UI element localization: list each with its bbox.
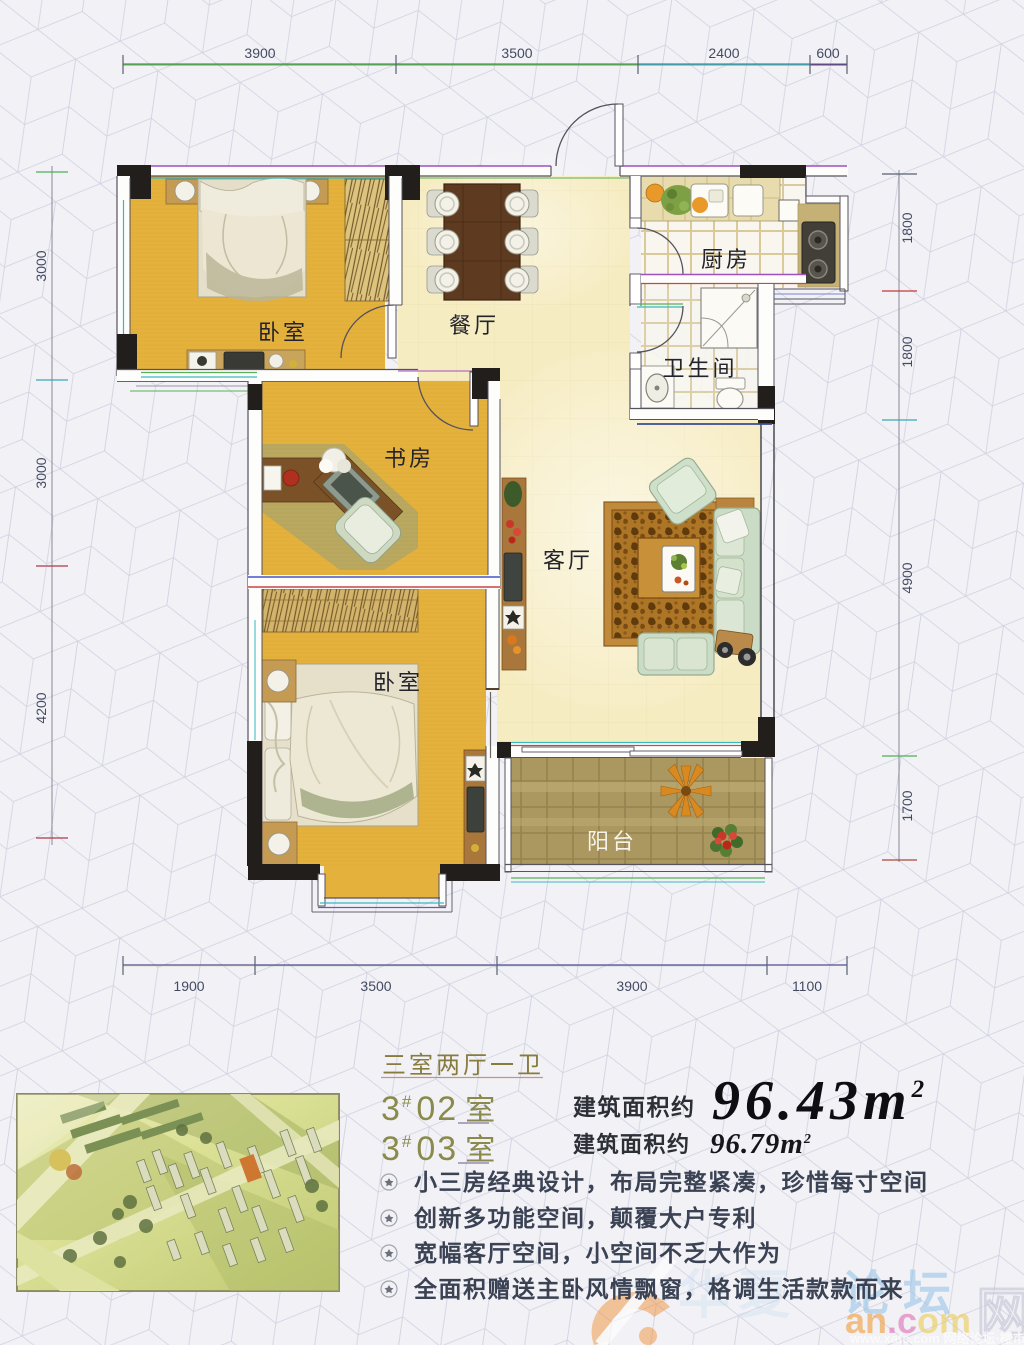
svg-text:96.79m2: 96.79m2 bbox=[710, 1128, 812, 1160]
svg-text:4200: 4200 bbox=[33, 692, 49, 723]
svg-text:3000: 3000 bbox=[33, 250, 49, 281]
svg-text:3500: 3500 bbox=[360, 978, 391, 994]
svg-text:96.43m2: 96.43m2 bbox=[712, 1070, 929, 1132]
svg-text:1900: 1900 bbox=[173, 978, 204, 994]
svg-text:卫生间: 卫生间 bbox=[662, 356, 737, 381]
svg-text:1800: 1800 bbox=[899, 212, 915, 243]
svg-text:4900: 4900 bbox=[899, 562, 915, 593]
svg-text:小三房经典设计，布局完整紧凑，珍惜每寸空间: 小三房经典设计，布局完整紧凑，珍惜每寸空间 bbox=[414, 1169, 929, 1195]
svg-text:宽幅客厅空间，小空间不乏大作为: 宽幅客厅空间，小空间不乏大作为 bbox=[414, 1240, 782, 1266]
svg-text:客厅: 客厅 bbox=[543, 548, 593, 573]
svg-text:3#02室: 3#02室 bbox=[381, 1090, 497, 1128]
svg-text:3000: 3000 bbox=[33, 457, 49, 488]
svg-text:三室两厅一卫: 三室两厅一卫 bbox=[382, 1052, 544, 1079]
svg-text:1100: 1100 bbox=[792, 978, 822, 994]
svg-text:建筑面积约: 建筑面积约 bbox=[573, 1132, 691, 1157]
svg-text:600: 600 bbox=[816, 45, 840, 61]
svg-text:厨房: 厨房 bbox=[701, 247, 751, 272]
svg-text:阳台: 阳台 bbox=[587, 829, 637, 854]
svg-text:2400: 2400 bbox=[708, 45, 739, 61]
svg-text:1800: 1800 bbox=[899, 336, 915, 367]
svg-text:书房: 书房 bbox=[384, 446, 434, 471]
svg-text:1700: 1700 bbox=[899, 790, 915, 821]
svg-text:全面积赠送主卧风情飘窗，格调生活款款而来: 全面积赠送主卧风情飘窗，格调生活款款而来 bbox=[413, 1276, 904, 1302]
svg-text:卧室: 卧室 bbox=[373, 670, 423, 695]
svg-text:3#03室: 3#03室 bbox=[381, 1130, 497, 1168]
svg-text:创新多功能空间，颠覆大户专利: 创新多功能空间，颠覆大户专利 bbox=[413, 1205, 757, 1231]
svg-text:卧室: 卧室 bbox=[258, 320, 308, 345]
svg-text:3900: 3900 bbox=[616, 978, 647, 994]
svg-text:3900: 3900 bbox=[244, 45, 275, 61]
svg-text:3500: 3500 bbox=[501, 45, 532, 61]
svg-text:www.xafc.com 网络论坛·楼市导航: www.xafc.com 网络论坛·楼市导航 bbox=[849, 1331, 1024, 1345]
svg-text:餐厅: 餐厅 bbox=[449, 313, 499, 338]
svg-text:建筑面积约: 建筑面积约 bbox=[573, 1094, 696, 1120]
